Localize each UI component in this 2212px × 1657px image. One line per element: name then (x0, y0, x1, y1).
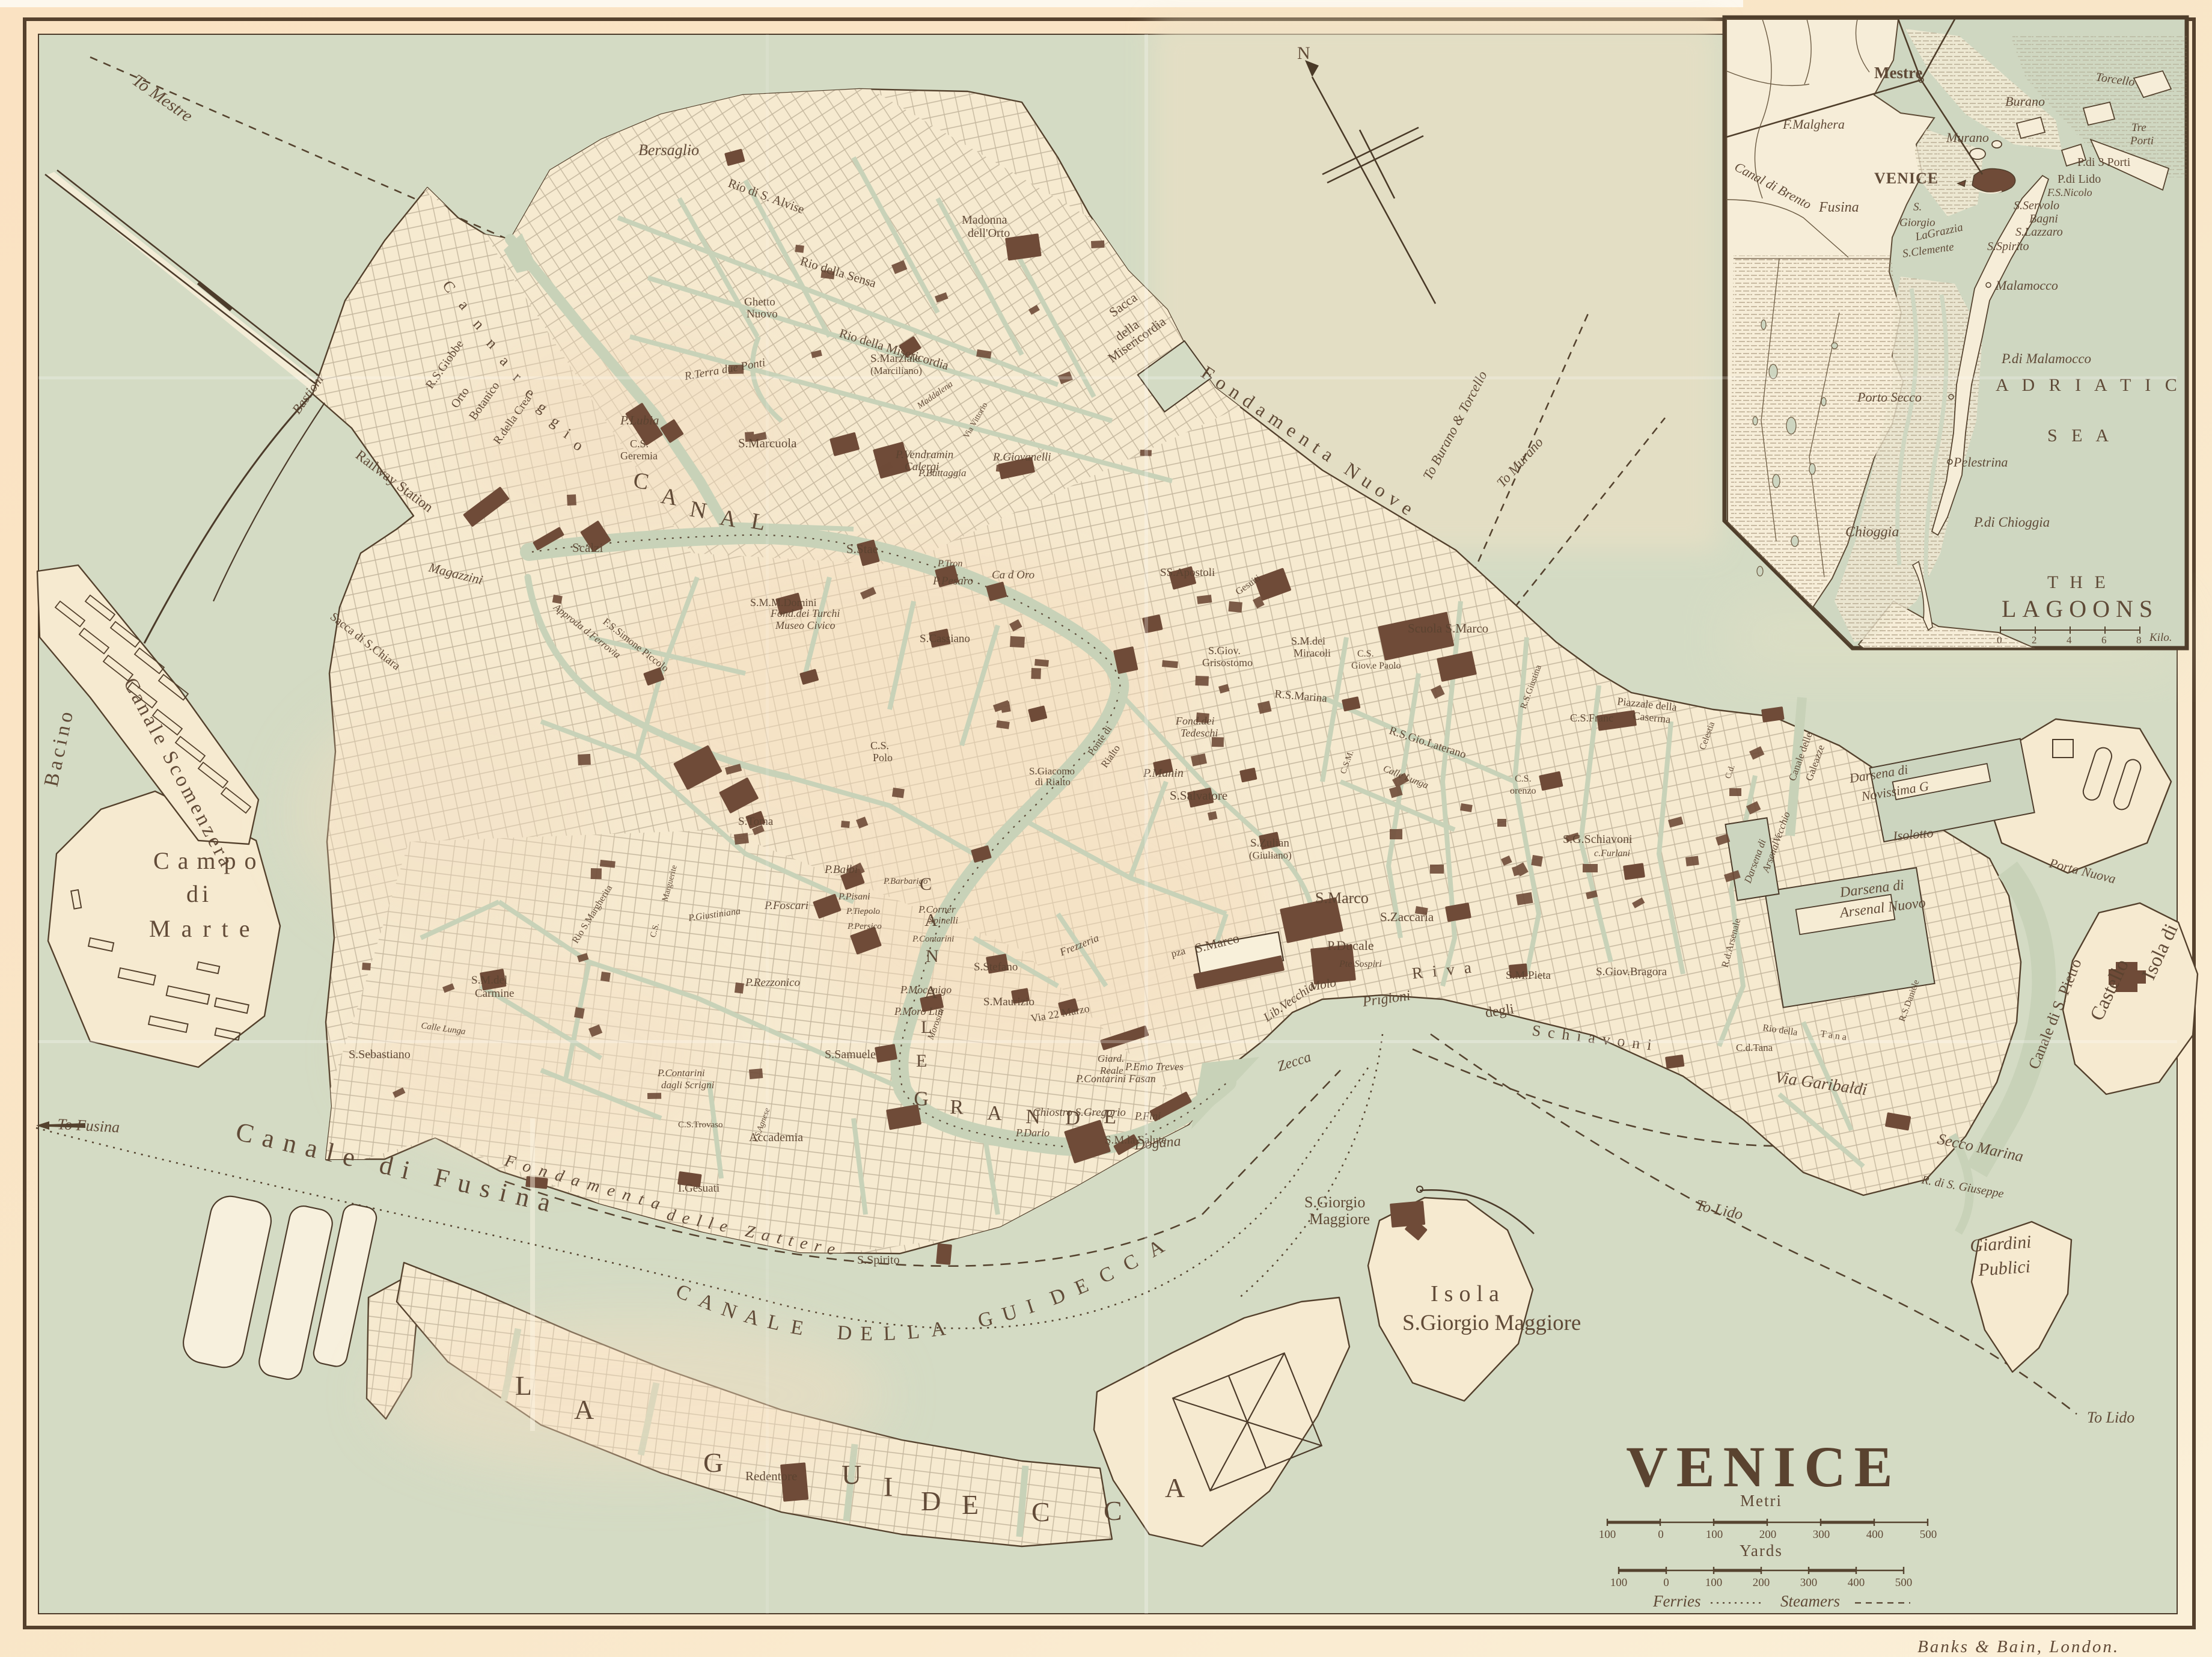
svg-text:0: 0 (1658, 1528, 1664, 1541)
svg-text:Kilo.: Kilo. (2149, 631, 2172, 644)
svg-text:500: 500 (1895, 1576, 1913, 1589)
svg-text:S.Servolo: S.Servolo (2014, 199, 2059, 212)
svg-text:L: L (515, 1370, 532, 1401)
svg-text:Tre: Tre (2131, 121, 2146, 134)
svg-text:I.Gesuati: I.Gesuati (678, 1182, 720, 1195)
svg-text:Malamocco: Malamocco (1995, 278, 2058, 293)
svg-text:P.Rezzonico: P.Rezzonico (745, 976, 800, 989)
svg-text:To Lido: To Lido (2087, 1409, 2134, 1426)
svg-text:100: 100 (1610, 1576, 1628, 1589)
svg-text:P.Foscari: P.Foscari (764, 899, 808, 912)
svg-text:Pelestrina: Pelestrina (1953, 455, 2008, 470)
svg-text:2: 2 (2032, 634, 2037, 646)
svg-text:S.Stae: S.Stae (846, 542, 878, 556)
svg-text:P.Barbarigo: P.Barbarigo (883, 877, 928, 886)
svg-text:Chioggia: Chioggia (1845, 524, 1899, 540)
svg-text:8: 8 (2136, 634, 2142, 646)
svg-text:P.Lubia: P.Lubia (620, 413, 659, 427)
svg-text:C: C (1104, 1495, 1122, 1526)
svg-text:(Marciliano): (Marciliano) (870, 365, 922, 376)
svg-text:di: di (186, 880, 212, 907)
svg-text:C.S.: C.S. (1357, 649, 1374, 659)
svg-text:P.Manin: P.Manin (1143, 767, 1184, 780)
svg-text:G: G (914, 1088, 929, 1110)
svg-text:A: A (574, 1394, 594, 1425)
svg-text:VENICE: VENICE (1874, 170, 1939, 187)
svg-text:E: E (962, 1489, 979, 1520)
svg-text:Mestre: Mestre (1874, 64, 1922, 82)
svg-text:Maggiore: Maggiore (1309, 1210, 1370, 1228)
svg-text:S.Cassiano: S.Cassiano (920, 632, 970, 645)
svg-text:P.di Lido: P.di Lido (2058, 173, 2101, 186)
svg-text:Burano: Burano (2005, 94, 2045, 109)
svg-text:C.S.Franc: C.S.Franc (1570, 712, 1613, 724)
svg-text:N: N (1297, 43, 1310, 63)
svg-text:100: 100 (1599, 1528, 1616, 1541)
svg-text:Nuovo: Nuovo (747, 308, 778, 320)
svg-text:Redentore: Redentore (745, 1469, 797, 1483)
svg-text:Steamers: Steamers (1780, 1592, 1840, 1610)
svg-text:C.S.Trovaso: C.S.Trovaso (678, 1120, 723, 1130)
svg-text:Fusina: Fusina (1818, 200, 1859, 215)
svg-text:S.G.Schiavoni: S.G.Schiavoni (1563, 833, 1633, 846)
svg-text:P.di 3 Porti: P.di 3 Porti (2077, 156, 2131, 169)
svg-text:C.S.: C.S. (1515, 774, 1532, 784)
svg-text:dagli Scrigni: dagli Scrigni (661, 1079, 715, 1091)
svg-text:P.Persico: P.Persico (847, 922, 882, 931)
svg-text:P.Contarini Fasan: P.Contarini Fasan (1075, 1073, 1156, 1085)
svg-text:C.d.Tana: C.d.Tana (1736, 1042, 1773, 1053)
svg-text:Grisostomo: Grisostomo (1202, 657, 1253, 669)
svg-text:300: 300 (1800, 1576, 1818, 1589)
svg-text:S.Giorgio Maggiore: S.Giorgio Maggiore (1402, 1311, 1581, 1335)
svg-text:S.M.Pieta: S.M.Pieta (1506, 969, 1551, 982)
svg-text:S.M.del: S.M.del (471, 974, 507, 987)
svg-text:S.Spirito: S.Spirito (857, 1254, 900, 1267)
svg-text:S.Sebastiano: S.Sebastiano (349, 1048, 411, 1061)
svg-text:S.Giov.Bragora: S.Giov.Bragora (1596, 966, 1667, 978)
svg-text:100: 100 (1705, 1576, 1723, 1589)
svg-text:LAGOONS: LAGOONS (2002, 595, 2159, 622)
svg-text:c.Furlani: c.Furlani (1594, 848, 1630, 859)
svg-text:Tedeschi: Tedeschi (1181, 727, 1218, 739)
svg-text:A: A (929, 1317, 947, 1341)
svg-text:Ghetto: Ghetto (744, 296, 775, 308)
svg-text:T H E: T H E (2047, 572, 2109, 592)
svg-text:200: 200 (1753, 1576, 1770, 1589)
svg-text:Ferries: Ferries (1652, 1592, 1700, 1610)
svg-text:D: D (921, 1486, 941, 1516)
svg-text:dell'Orto: dell'Orto (968, 227, 1010, 240)
svg-text:P.Pisani: P.Pisani (838, 892, 870, 902)
svg-text:Metri: Metri (1740, 1492, 1782, 1510)
svg-text:P.Tron: P.Tron (937, 559, 962, 569)
svg-text:Porti: Porti (2130, 135, 2154, 147)
svg-text:S.M.la Salute: S.M.la Salute (1105, 1134, 1167, 1147)
svg-text:Spinelli: Spinelli (929, 916, 958, 926)
svg-text:Fond.dei Turchi: Fond.dei Turchi (770, 607, 840, 619)
svg-text:Museo Civico: Museo Civico (775, 619, 835, 631)
svg-text:P.Tiepolo: P.Tiepolo (846, 907, 880, 916)
svg-text:E: E (860, 1323, 873, 1345)
svg-text:F.S.Nicolo: F.S.Nicolo (2047, 186, 2092, 198)
svg-text:S.Spirito: S.Spirito (1987, 240, 2029, 253)
svg-text:4: 4 (2067, 634, 2072, 646)
svg-text:Ca d Oro: Ca d Oro (992, 569, 1034, 581)
svg-text:S.M.M.Domini: S.M.M.Domini (750, 596, 817, 608)
svg-text:(Giuliano): (Giuliano) (1249, 850, 1292, 861)
svg-text:Murano: Murano (1946, 130, 1989, 145)
svg-text:200: 200 (1759, 1528, 1777, 1541)
svg-text:400: 400 (1866, 1528, 1884, 1541)
svg-text:S.Giacomo: S.Giacomo (1029, 765, 1075, 777)
svg-text:R.Giovanelli: R.Giovanelli (992, 451, 1051, 464)
svg-text:S.Zulian: S.Zulian (1250, 837, 1289, 850)
svg-text:P.Contarini: P.Contarini (657, 1067, 705, 1079)
svg-text:S.Zaccaria: S.Zaccaria (1380, 910, 1434, 924)
svg-text:I: I (884, 1471, 893, 1502)
svg-text:300: 300 (1813, 1528, 1830, 1541)
svg-text:S.Salvatore: S.Salvatore (1170, 788, 1227, 803)
svg-text:orenzo: orenzo (1510, 786, 1536, 796)
svg-text:Miracoli: Miracoli (1294, 647, 1331, 659)
svg-text:C.S.: C.S. (630, 438, 649, 450)
svg-text:Fond.dei: Fond.dei (1175, 715, 1215, 727)
svg-text:Giard.: Giard. (1098, 1053, 1124, 1064)
svg-text:S.Maurizio: S.Maurizio (983, 996, 1034, 1008)
svg-text:Bersaglio: Bersaglio (638, 141, 699, 159)
svg-text:Publici: Publici (1977, 1257, 2031, 1280)
svg-text:Scalzi: Scalzi (572, 541, 603, 555)
svg-text:P.Balbi: P.Balbi (824, 863, 858, 876)
svg-text:U: U (842, 1459, 861, 1490)
svg-text:S.: S. (1913, 201, 1922, 213)
svg-text:A: A (1165, 1472, 1185, 1503)
svg-text:C: C (1031, 1496, 1050, 1527)
svg-text:P.Ducale: P.Ducale (1327, 938, 1374, 953)
svg-text:S.Giov.: S.Giov. (1208, 645, 1241, 657)
svg-text:0: 0 (1997, 634, 2002, 646)
svg-text:P.di Chioggia: P.di Chioggia (1973, 515, 2050, 530)
svg-text:S.M.dei: S.M.dei (1291, 635, 1325, 647)
svg-text:S E A: S E A (2047, 426, 2113, 446)
svg-text:400: 400 (1848, 1576, 1865, 1589)
svg-text:Campo: Campo (153, 847, 265, 874)
svg-text:L: L (883, 1322, 896, 1345)
svg-text:Yards: Yards (1740, 1542, 1783, 1560)
svg-text:Madonna: Madonna (962, 213, 1007, 227)
svg-text:D: D (836, 1322, 852, 1345)
svg-text:P.Vendramin: P.Vendramin (895, 449, 953, 461)
svg-text:P.Mocenigo: P.Mocenigo (900, 984, 952, 996)
svg-text:Marte: Marte (149, 915, 261, 942)
svg-text:P.Pesaro: P.Pesaro (932, 575, 973, 587)
svg-text:Carmine: Carmine (475, 987, 514, 1000)
svg-text:di Rialto: di Rialto (1035, 776, 1071, 788)
svg-text:Banks & Bain, London.: Banks & Bain, London. (1917, 1637, 2119, 1656)
svg-text:F.Malghera: F.Malghera (1782, 117, 1845, 132)
svg-text:S.Stefano: S.Stefano (974, 961, 1018, 973)
svg-text:A: A (987, 1102, 1003, 1125)
svg-text:Isola: Isola (1431, 1281, 1505, 1306)
svg-text:Chiostro S.Gregorio: Chiostro S.Gregorio (1033, 1106, 1126, 1119)
svg-text:S.Giorgio: S.Giorgio (1304, 1193, 1365, 1211)
svg-text:SS.Apostoli: SS.Apostoli (1160, 566, 1215, 579)
svg-text:Giov.e Paolo: Giov.e Paolo (1351, 661, 1401, 671)
svg-text:P.Contarini: P.Contarini (912, 934, 954, 944)
svg-text:P.Dario: P.Dario (1015, 1127, 1049, 1139)
svg-text:P.Battaggia: P.Battaggia (918, 467, 967, 479)
svg-text:0: 0 (1663, 1576, 1669, 1589)
svg-text:500: 500 (1920, 1528, 1937, 1541)
svg-text:C.S.: C.S. (870, 740, 889, 752)
svg-text:6: 6 (2101, 634, 2107, 646)
svg-text:S.Samuele: S.Samuele (825, 1048, 876, 1061)
svg-text:R: R (950, 1096, 964, 1119)
svg-text:S.Marco: S.Marco (1315, 889, 1369, 907)
svg-text:Bagni: Bagni (2029, 212, 2058, 225)
svg-text:Geremia: Geremia (620, 450, 658, 462)
svg-text:P.Corner: P.Corner (918, 904, 956, 915)
svg-text:Porto Secco: Porto Secco (1857, 390, 1922, 405)
svg-text:L: L (906, 1320, 920, 1344)
svg-text:Pte Sospiri: Pte Sospiri (1339, 959, 1382, 969)
svg-text:100: 100 (1706, 1528, 1723, 1541)
svg-text:S.Lazzaro: S.Lazzaro (2015, 225, 2063, 239)
svg-text:P.di Malamocco: P.di Malamocco (2001, 351, 2091, 366)
svg-text:E: E (916, 1051, 927, 1071)
svg-text:S.Marziale: S.Marziale (870, 352, 920, 365)
svg-text:Scuola S.Marco: Scuola S.Marco (1408, 621, 1488, 636)
svg-text:Polo: Polo (873, 752, 893, 764)
svg-text:VENICE: VENICE (1626, 1435, 1901, 1499)
svg-text:P.Emo Treves: P.Emo Treves (1125, 1061, 1184, 1073)
svg-text:G: G (703, 1447, 723, 1478)
svg-text:N: N (926, 946, 939, 966)
